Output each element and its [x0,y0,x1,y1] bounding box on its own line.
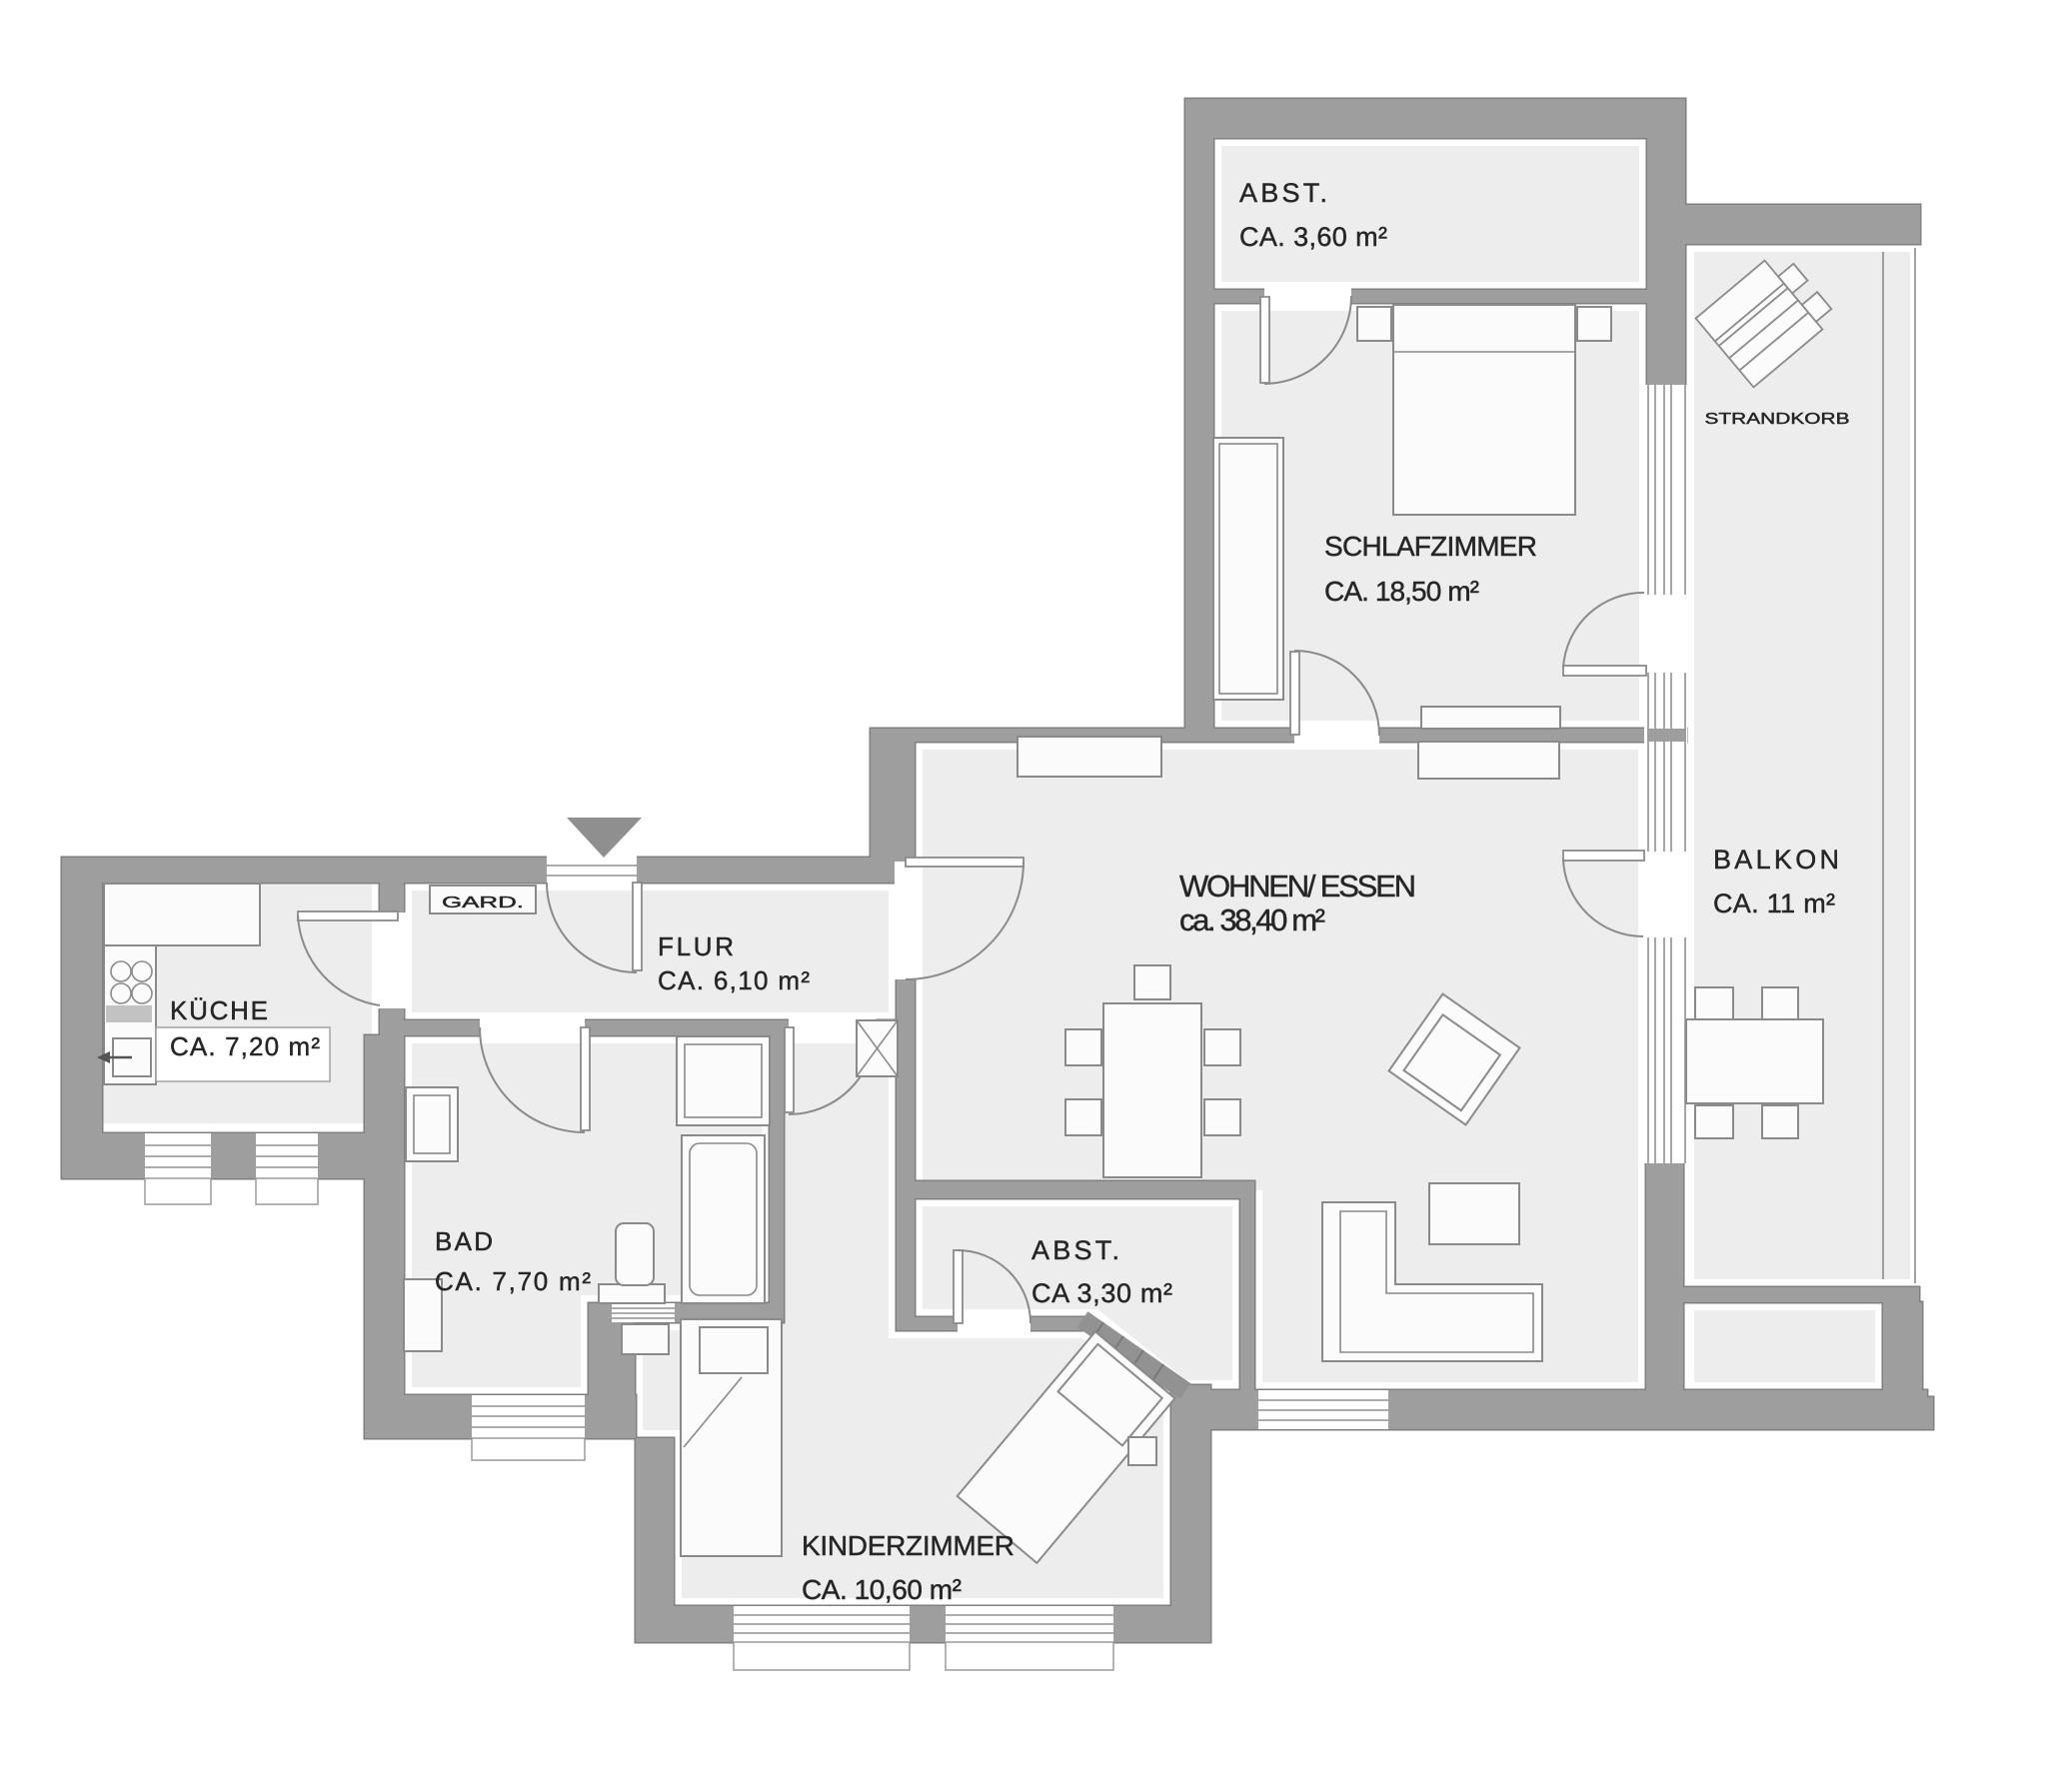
svg-text:CA. 7,70 m²: CA. 7,70 m² [435,1266,591,1296]
svg-text:CA. 7,20 m²: CA. 7,20 m² [170,1031,320,1061]
svg-text:CA. 11 m²: CA. 11 m² [1713,889,1835,918]
svg-text:WOHNEN/ ESSEN: WOHNEN/ ESSEN [1179,869,1416,903]
svg-text:KINDERZIMMER: KINDERZIMMER [802,1530,1015,1561]
svg-text:STRANDKORB: STRANDKORB [1705,411,1850,428]
svg-text:CA. 10,60 m²: CA. 10,60 m² [802,1574,962,1605]
svg-text:CA 3,30 m²: CA 3,30 m² [1031,1278,1172,1308]
svg-text:CA. 18,50 m²: CA. 18,50 m² [1324,576,1479,607]
svg-text:ABST.: ABST. [1239,178,1327,208]
svg-text:FLUR: FLUR [658,931,734,961]
svg-text:ca. 38,40 m²: ca. 38,40 m² [1179,902,1325,937]
svg-text:ABST.: ABST. [1031,1235,1119,1265]
svg-text:SCHLAFZIMMER: SCHLAFZIMMER [1324,531,1537,562]
svg-text:GARD.: GARD. [442,895,524,911]
svg-text:KÜCHE: KÜCHE [170,995,268,1025]
svg-text:CA. 6,10 m²: CA. 6,10 m² [658,965,810,995]
svg-text:CA. 3,60 m²: CA. 3,60 m² [1239,222,1387,252]
svg-text:BAD: BAD [435,1226,493,1256]
